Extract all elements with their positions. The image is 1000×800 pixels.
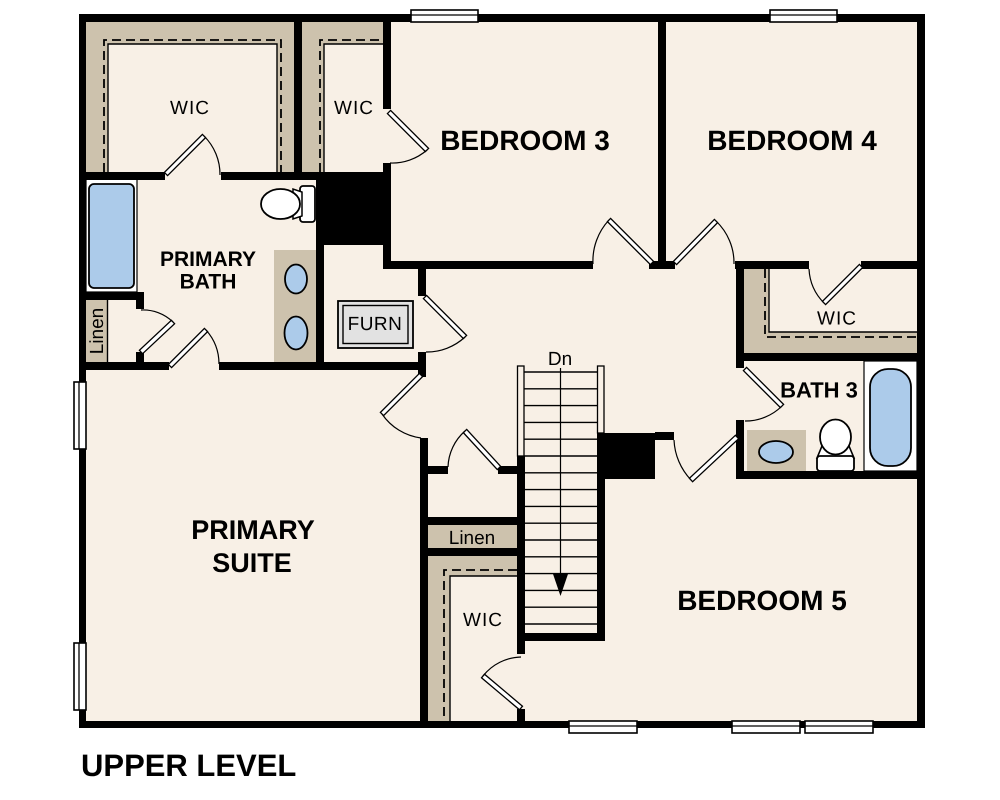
svg-text:WIC: WIC [817,309,857,330]
svg-text:BEDROOM 4: BEDROOM 4 [707,125,877,156]
svg-text:SUITE: SUITE [212,548,292,578]
svg-text:WIC: WIC [334,98,374,119]
svg-text:PRIMARY: PRIMARY [160,248,256,271]
svg-text:BATH: BATH [180,271,237,294]
svg-text:BEDROOM 5: BEDROOM 5 [677,585,847,616]
svg-text:BATH 3: BATH 3 [780,378,858,403]
svg-text:BEDROOM 3: BEDROOM 3 [440,125,610,156]
svg-text:Linen: Linen [87,308,108,355]
svg-text:PRIMARY: PRIMARY [191,515,315,545]
svg-text:Dn: Dn [548,349,572,370]
svg-text:FURN: FURN [348,314,403,335]
svg-text:UPPER LEVEL: UPPER LEVEL [81,748,296,783]
svg-text:WIC: WIC [170,98,210,119]
svg-text:WIC: WIC [463,610,503,631]
svg-text:Linen: Linen [449,528,496,549]
